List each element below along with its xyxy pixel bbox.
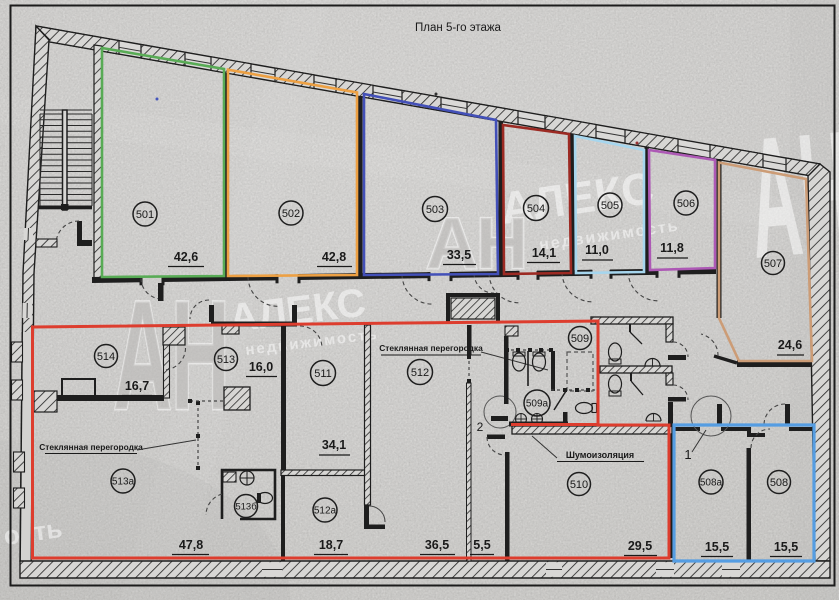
svg-text:503: 503 [426,204,444,216]
svg-text:16,7: 16,7 [125,379,149,393]
svg-text:513: 513 [217,354,235,366]
svg-text:509: 509 [571,333,589,345]
svg-text:42,6: 42,6 [174,250,198,264]
svg-text:507: 507 [764,258,782,270]
svg-text:36,5: 36,5 [425,538,449,552]
svg-text:18,7: 18,7 [319,538,343,552]
svg-text:508а: 508а [700,478,723,489]
svg-text:502: 502 [282,208,300,220]
svg-text:513б: 513б [235,501,257,512]
svg-text:Стеклянная перегородка: Стеклянная перегородка [39,442,143,452]
svg-text:506: 506 [677,198,695,210]
svg-text:510: 510 [570,479,588,491]
svg-text:11,8: 11,8 [660,241,684,255]
svg-text:504: 504 [527,203,545,215]
svg-text:505: 505 [601,200,619,212]
svg-text:24,6: 24,6 [778,338,802,352]
svg-text:29,5: 29,5 [628,539,652,553]
svg-text:План 5-го этажа: План 5-го этажа [415,22,502,34]
svg-text:47,8: 47,8 [179,538,203,552]
svg-text:15,5: 15,5 [774,540,798,554]
svg-text:Шумоизоляция: Шумоизоляция [566,450,634,460]
svg-text:11,0: 11,0 [585,243,609,257]
svg-text:14,1: 14,1 [532,246,556,260]
svg-text:34,1: 34,1 [322,438,346,452]
svg-text:512а: 512а [314,506,337,517]
svg-text:АН: АН [113,269,229,443]
svg-text:5,5: 5,5 [473,538,490,552]
svg-text:33,5: 33,5 [447,248,471,262]
svg-text:501: 501 [136,209,154,221]
svg-text:42,8: 42,8 [322,250,346,264]
svg-text:1: 1 [684,447,691,462]
svg-text:2: 2 [477,420,484,434]
svg-text:508: 508 [770,477,788,489]
svg-text:514: 514 [97,351,115,363]
svg-text:513а: 513а [112,477,135,488]
svg-text:509а: 509а [526,399,549,410]
svg-text:15,5: 15,5 [705,540,729,554]
svg-text:512: 512 [411,367,429,379]
svg-text:511: 511 [314,368,332,380]
svg-text:16,0: 16,0 [249,360,273,374]
